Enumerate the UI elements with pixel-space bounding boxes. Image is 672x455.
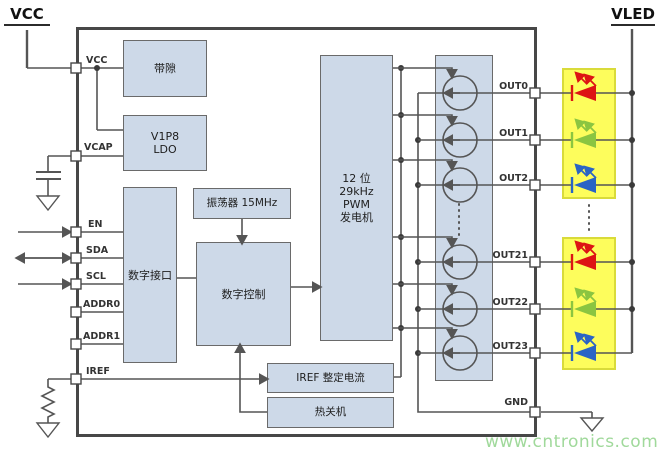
iref-trim-label: IREF 整定电流 [296,372,364,385]
ldo-block: V1P8 LDO [123,115,207,171]
block-diagram: VCC VLED 带隙 V1P8 LDO 数字接口 振荡器 15MHz 数字控制… [0,0,672,455]
pin-label-gnd: GND [486,397,528,408]
pwm-label-line1: 12 位 [342,172,371,185]
bandgap-block: 带隙 [123,40,207,97]
led-group-2-highlight [562,237,616,370]
pin-label-sda: SDA [86,245,108,256]
vled-rail-label: VLED [611,5,655,26]
ground-icon [37,423,59,437]
thermal-to-control-arrow [240,352,267,412]
gnd-wire [541,412,592,418]
pin-label-scl: SCL [86,271,106,282]
pin-label-addr1: ADDR1 [83,331,120,342]
pwm-label-line2: 29kHz [339,185,373,198]
current-source-column [435,55,493,381]
iref-reference-bus [394,65,404,377]
thermal-shutdown-block: 热关机 [267,397,394,428]
vcc-rail [27,30,71,68]
digital-control-block: 数字控制 [196,242,291,346]
ground-icon [37,196,59,210]
pwm-generator-block: 12 位 29kHz PWM 发电机 [320,55,393,341]
digital-interface-block: 数字接口 [123,187,177,363]
pin-label-out2: OUT2 [486,173,528,184]
pin-label-out0: OUT0 [486,81,528,92]
digital-control-label: 数字控制 [222,288,266,301]
thermal-shutdown-label: 热关机 [315,406,347,419]
pin-label-vcc: VCC [86,55,107,66]
vcc-rail-label: VCC [4,5,50,26]
pwm-label-line3: PWM [343,198,370,211]
pin-label-addr0: ADDR0 [83,299,120,310]
pin-label-out23: OUT23 [486,341,528,352]
ground-icon [581,418,603,431]
pin-label-out1: OUT1 [486,128,528,139]
pin-label-vcap: VCAP [84,142,113,153]
oscillator-label: 振荡器 15MHz [207,197,278,210]
bandgap-label: 带隙 [154,62,176,75]
pwm-label-line4: 发电机 [340,211,373,224]
pin-label-out22: OUT22 [486,297,528,308]
capacitor-icon [36,156,71,196]
ldo-label-line1: V1P8 [151,130,179,143]
watermark-text: www.cntronics.com [485,432,658,452]
resistor-icon [42,379,71,423]
oscillator-block: 振荡器 15MHz [193,188,291,219]
vled-rail [629,29,635,353]
pin-label-iref: IREF [86,366,110,377]
pin-label-out21: OUT21 [486,250,528,261]
ldo-label-line2: LDO [153,143,176,156]
iref-trim-block: IREF 整定电流 [267,363,394,393]
pin-label-en: EN [88,219,102,230]
digital-interface-label: 数字接口 [128,269,172,282]
led-group-1-highlight [562,68,616,199]
